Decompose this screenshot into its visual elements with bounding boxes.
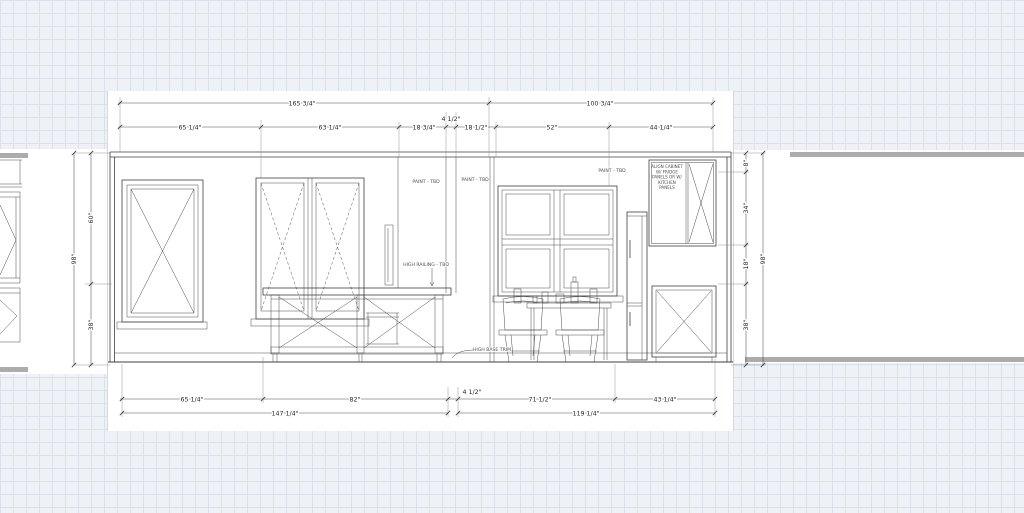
high-railing-note: HIGH RAILING - TBD (403, 262, 449, 268)
cabinet-note-line: W/ FRIDGE (656, 169, 678, 174)
elevation-drawing-canvas: 165 3/4" 100 3/4" 65 1/4" 63 1/4" 18 3/4… (0, 0, 1024, 513)
dim-label: 98" (71, 253, 78, 264)
paint-tag-2: PAINT - TBD (461, 177, 489, 183)
right-sheet-wall-band (790, 152, 1024, 157)
dim-label: 38" (88, 319, 95, 330)
high-base-trim-note: HIGH BASE TRIM (473, 347, 511, 353)
dim-label: 98" (760, 253, 767, 264)
main-sheet (107, 91, 734, 431)
paper-sheets (0, 91, 1024, 431)
dim-label: 52" (547, 125, 558, 132)
dim-label: 65 1/4" (178, 125, 201, 132)
dim-label: 165 3/4" (288, 101, 315, 108)
dim-label: 71 1/2" (528, 397, 551, 404)
dim-label: 8" (743, 159, 750, 166)
dim-label: 18 3/4" (412, 125, 435, 132)
paint-tag-3: PAINT - TBD (598, 168, 626, 174)
dim-label: 60" (88, 212, 95, 223)
elevation-drawing-svg: 165 3/4" 100 3/4" 65 1/4" 63 1/4" 18 3/4… (0, 0, 1024, 513)
dim-label: 119 1/4" (572, 411, 599, 418)
dim-label: 4 1/2" (441, 116, 460, 123)
right-sheet (733, 150, 1024, 363)
dim-label: 100 3/4" (586, 101, 613, 108)
dim-label: 147 1/4" (271, 411, 298, 418)
dim-label: 65 1/4" (180, 397, 203, 404)
dim-label: 63 1/4" (318, 125, 341, 132)
dim-label: 43 1/4" (653, 397, 676, 404)
dim-label: 18 1/2" (464, 125, 487, 132)
cabinet-note-line: KITCHEN (658, 180, 676, 185)
dim-label: 38" (743, 319, 750, 330)
dim-label: 44 1/4" (649, 125, 672, 132)
right-sheet-floor-band (745, 357, 1024, 362)
cabinet-note-line: PANELS OR W/ (652, 175, 682, 180)
dim-label: 82" (350, 397, 361, 404)
dim-label: 4 1/2" (462, 389, 481, 396)
dim-label: 34" (743, 202, 750, 213)
paint-tag-1: PAINT - TBD (412, 179, 440, 185)
cabinet-note-line: ALIGN CABINET (651, 164, 683, 169)
dim-label: 18" (743, 258, 750, 269)
cabinet-note-line: PANELS (659, 185, 675, 190)
